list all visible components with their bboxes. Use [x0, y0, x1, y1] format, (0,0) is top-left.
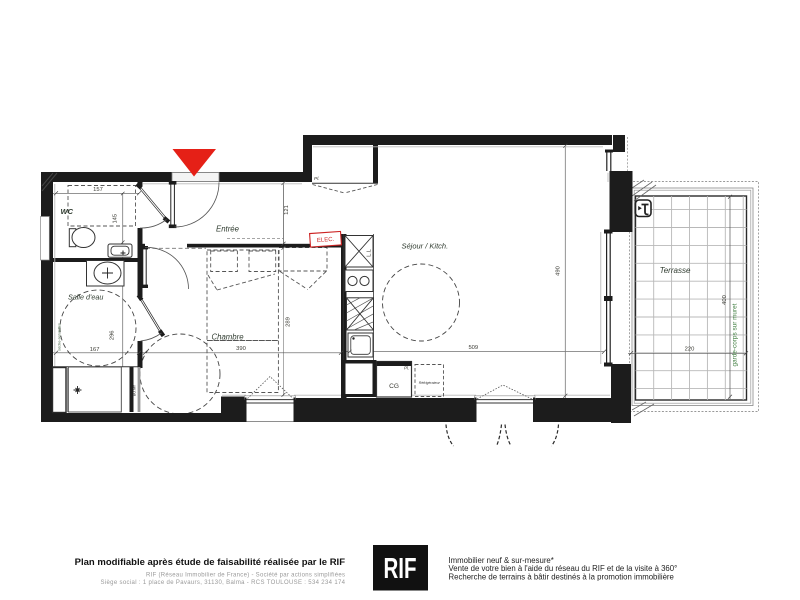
svg-text:296: 296: [110, 330, 116, 340]
svg-text:121: 121: [284, 205, 290, 215]
svg-text:BO.Mh: BO.Mh: [132, 385, 136, 396]
svg-text:Séjour / Kitch.: Séjour / Kitch.: [402, 241, 449, 250]
svg-text:RIF (Réseau Immobilier de Fran: RIF (Réseau Immobilier de France) - Soci…: [146, 572, 345, 578]
svg-text:220: 220: [685, 347, 695, 353]
svg-text:sèche-serviettes: sèche-serviettes: [58, 323, 62, 351]
svg-text:Pl.: Pl.: [314, 176, 320, 182]
svg-text:400: 400: [722, 295, 728, 305]
svg-text:RIF: RIF: [384, 553, 417, 585]
svg-text:167: 167: [90, 347, 100, 353]
svg-text:157: 157: [93, 187, 103, 193]
svg-text:Recherche de terrains à bâtir: Recherche de terrains à bâtir destinés à…: [449, 572, 674, 581]
svg-text:Salle d'eau: Salle d'eau: [68, 293, 103, 302]
svg-text:WC: WC: [61, 207, 74, 216]
svg-text:L.L: L.L: [367, 249, 373, 257]
svg-text:garde-corps sur muret: garde-corps sur muret: [732, 303, 739, 366]
svg-text:ELEC.: ELEC.: [317, 237, 335, 244]
svg-text:490: 490: [555, 266, 561, 276]
svg-text:Siège social : 1 place de Pava: Siège social : 1 place de Pavaurs, 31130…: [101, 580, 346, 586]
svg-text:Entrée: Entrée: [216, 225, 240, 234]
svg-text:Pl.: Pl.: [404, 366, 409, 371]
svg-text:145: 145: [112, 214, 118, 224]
svg-text:509: 509: [468, 345, 478, 351]
svg-text:Plan modifiable après étude de: Plan modifiable après étude de faisabili…: [75, 557, 346, 568]
svg-text:Réfrigérateur: Réfrigérateur: [419, 381, 441, 385]
svg-text:Terrasse: Terrasse: [660, 266, 691, 275]
svg-text:390: 390: [236, 346, 246, 352]
svg-text:Chambre: Chambre: [212, 333, 245, 342]
svg-text:289: 289: [286, 317, 292, 327]
svg-text:CG: CG: [389, 383, 399, 390]
